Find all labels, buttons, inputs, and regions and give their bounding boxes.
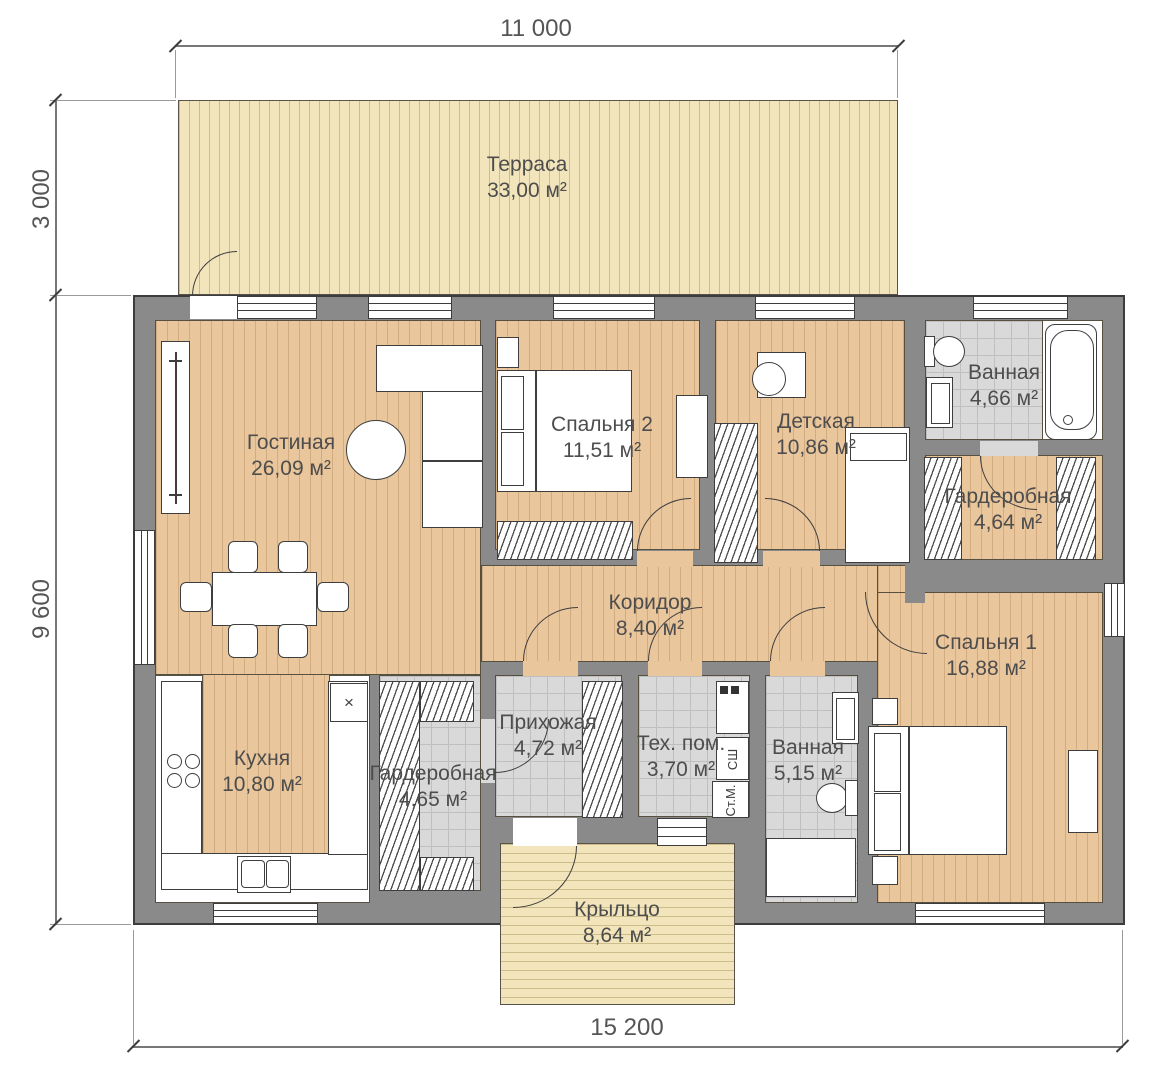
boiler-detail [731,686,739,694]
shower-tray-icon [766,838,856,897]
fireplace-detail [169,360,182,362]
room-area: 10,86 м² [716,435,916,461]
blanket-line [908,727,910,854]
window-kids-room [755,296,855,319]
room-label-corridor: Коридор 8,40 м² [550,590,750,642]
room-label-wardrobe1: Гардеробная 4,64 м² [908,484,1108,536]
extension-line [175,50,176,98]
closet-wardrobe2-bottom [420,857,474,891]
sink-bowl [266,860,289,888]
corner-cabinet-symbol: × [344,693,354,713]
chair-icon [278,624,308,658]
room-name: Терраса [427,152,627,178]
fireplace-detail [169,494,182,496]
chair-icon [278,541,308,573]
room-label-bedroom2: Спальня 2 11,51 м² [502,412,702,464]
room-label-kids: Детская 10,86 м² [716,409,916,461]
washing-machine-label: Ст.М. [723,782,738,819]
extension-line [133,930,134,1044]
room-label-bath2: Ванная 5,15 м² [708,735,908,787]
room-name: Гардеробная [333,761,533,787]
chair-icon [228,541,258,573]
hall-door-opening [523,661,578,676]
window-kitchen [213,903,318,924]
room-label-living: Гостиная 26,09 м² [191,430,391,482]
sink-bowl [241,860,265,888]
room-name: Гардеробная [908,484,1108,510]
floor-plan: 11 000 3 000 9 600 15 200 [0,0,1164,1080]
sofa-cushion-line [423,460,482,462]
room-area: 5,15 м² [708,761,908,787]
extension-line [1122,930,1123,1044]
room-name: Детская [716,409,916,435]
room-name: Ванная [708,735,908,761]
dim-label-left-lower: 9 600 [28,499,56,719]
extension-line [897,50,898,98]
room-area: 8,40 м² [550,616,750,642]
terrace-door-opening [190,296,237,319]
window-tech-room [657,818,707,846]
chair-kids-icon [752,362,786,396]
room-label-bedroom1: Спальня 1 16,88 м² [886,630,1086,682]
extension-line [50,295,131,296]
room-name: Ванная [904,360,1104,386]
dim-label-left-upper: 3 000 [28,89,56,309]
room-name: Гостиная [191,430,391,456]
dresser-bedroom1 [1068,750,1098,833]
chair-icon [228,624,258,658]
room-area: 4,65 м² [333,787,533,813]
tech-door-opening [648,661,702,676]
room-name: Кухня [162,746,362,772]
dining-table-icon [212,572,317,626]
window-bath1 [973,296,1068,319]
room-area: 11,51 м² [502,438,702,464]
dim-line-bottom [133,1046,1123,1048]
bathtub-drain [1063,415,1073,425]
room-name: Спальня 2 [502,412,702,438]
room-area: 4,64 м² [908,510,1108,536]
nightstand [872,698,898,725]
room-label-porch: Крыльцо 8,64 м² [517,897,717,949]
extension-line [50,100,176,101]
window-bedroom1-east [1104,583,1125,637]
boiler-detail [720,686,728,694]
pillow [874,793,901,851]
chair-icon [180,582,212,612]
nightstand [497,337,519,368]
room-label-kitchen: Кухня 10,80 м² [162,746,362,798]
fireplace-detail [175,352,177,504]
bedroom2-door-opening [637,551,693,567]
window-living-1 [237,296,317,319]
room-name: Коридор [550,590,750,616]
room-label-bath1: Ванная 4,66 м² [904,360,1104,412]
room-name: Спальня 1 [886,630,1086,656]
extension-line [50,924,131,925]
dim-label-top: 11 000 [436,15,636,43]
room-area: 16,88 м² [886,656,1086,682]
dim-label-bottom: 15 200 [527,1014,727,1042]
sink-bowl [836,698,855,740]
bath1-door-opening [980,441,1038,456]
nightstand [872,856,898,885]
chair-icon [317,582,349,612]
room-label-terrace: Терраса 33,00 м² [427,152,627,204]
room-area: 10,80 м² [162,772,362,798]
window-dining [134,530,155,665]
toilet-bowl-icon [816,783,848,813]
room-area: 4,66 м² [904,386,1104,412]
kids-door-opening [763,551,820,567]
corner-cabinet-icon: × [330,683,368,722]
front-door-opening [513,818,577,846]
window-bedroom2 [553,296,655,319]
room-area: 8,64 м² [517,923,717,949]
closet-bedroom2 [497,521,633,560]
dim-line-top [175,45,898,47]
bath2-door-opening [770,661,825,676]
sofa-chaise [376,345,483,392]
room-area: 33,00 м² [427,178,627,204]
window-bedroom1-south [915,903,1045,924]
room-name: Крыльцо [517,897,717,923]
room-label-wardrobe2: Гардеробная 4,65 м² [333,761,533,813]
room-area: 26,09 м² [191,456,391,482]
window-living-2 [368,296,452,319]
